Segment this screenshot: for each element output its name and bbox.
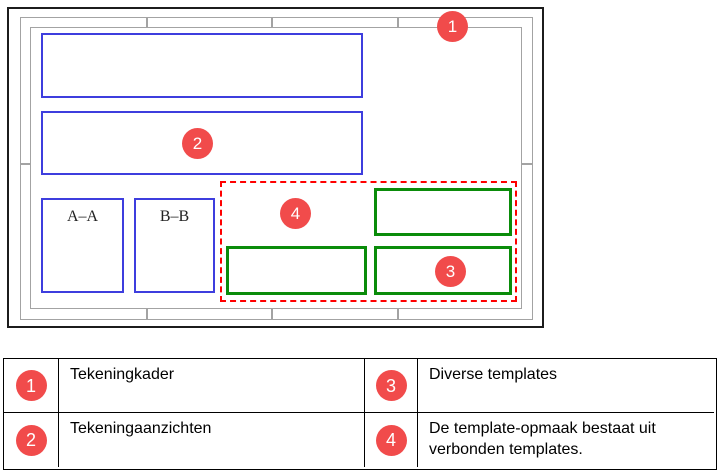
section-view-b: B–B bbox=[134, 198, 215, 293]
zone-tick bbox=[271, 17, 273, 28]
legend-badge-2: 2 bbox=[16, 425, 47, 456]
section-view-a: A–A bbox=[41, 198, 124, 293]
drawing-figure: A–A B–B 1 2 3 4 bbox=[0, 0, 724, 340]
legend-label-2: Tekeningaanzichten bbox=[70, 420, 211, 437]
zone-tick bbox=[146, 309, 148, 320]
template-box-bottom-left bbox=[226, 246, 367, 295]
callout-4-badge: 4 bbox=[280, 198, 311, 229]
legend-label-1: Tekeningkader bbox=[70, 366, 174, 383]
legend-table: 1 Tekeningkader 3 Diverse templates 2 Te… bbox=[3, 358, 717, 470]
legend-cell-badge-3: 3 bbox=[365, 359, 418, 413]
section-view-a-label: A–A bbox=[67, 208, 98, 225]
zone-tick bbox=[397, 309, 399, 320]
zone-tick bbox=[271, 309, 273, 320]
zone-tick bbox=[397, 17, 399, 28]
drawing-view-top bbox=[41, 33, 363, 98]
legend-cell-badge-4: 4 bbox=[365, 413, 418, 467]
page: A–A B–B 1 2 3 4 1 Tekeningkader 3 Divers… bbox=[0, 0, 724, 472]
legend-cell-text-3: Diverse templates bbox=[418, 359, 714, 413]
legend-badge-3: 3 bbox=[376, 370, 407, 401]
legend-cell-text-1: Tekeningkader bbox=[59, 359, 365, 413]
legend-cell-text-4: De template-opmaak bestaat uit verbonden… bbox=[418, 413, 714, 467]
legend-label-4: De template-opmaak bestaat uit verbonden… bbox=[429, 420, 656, 458]
zone-tick bbox=[20, 163, 31, 165]
legend-cell-text-2: Tekeningaanzichten bbox=[59, 413, 365, 467]
callout-3-badge: 3 bbox=[435, 256, 466, 287]
section-view-b-label: B–B bbox=[160, 208, 189, 225]
callout-1-badge: 1 bbox=[437, 11, 468, 42]
zone-tick bbox=[146, 17, 148, 28]
legend-cell-badge-1: 1 bbox=[4, 359, 59, 413]
callout-2-badge: 2 bbox=[182, 128, 213, 159]
legend-cell-badge-2: 2 bbox=[4, 413, 59, 467]
legend-label-3: Diverse templates bbox=[429, 366, 557, 383]
legend-badge-1: 1 bbox=[16, 370, 47, 401]
template-box-top-right bbox=[374, 188, 512, 236]
legend-badge-4: 4 bbox=[376, 425, 407, 456]
zone-tick bbox=[522, 163, 533, 165]
